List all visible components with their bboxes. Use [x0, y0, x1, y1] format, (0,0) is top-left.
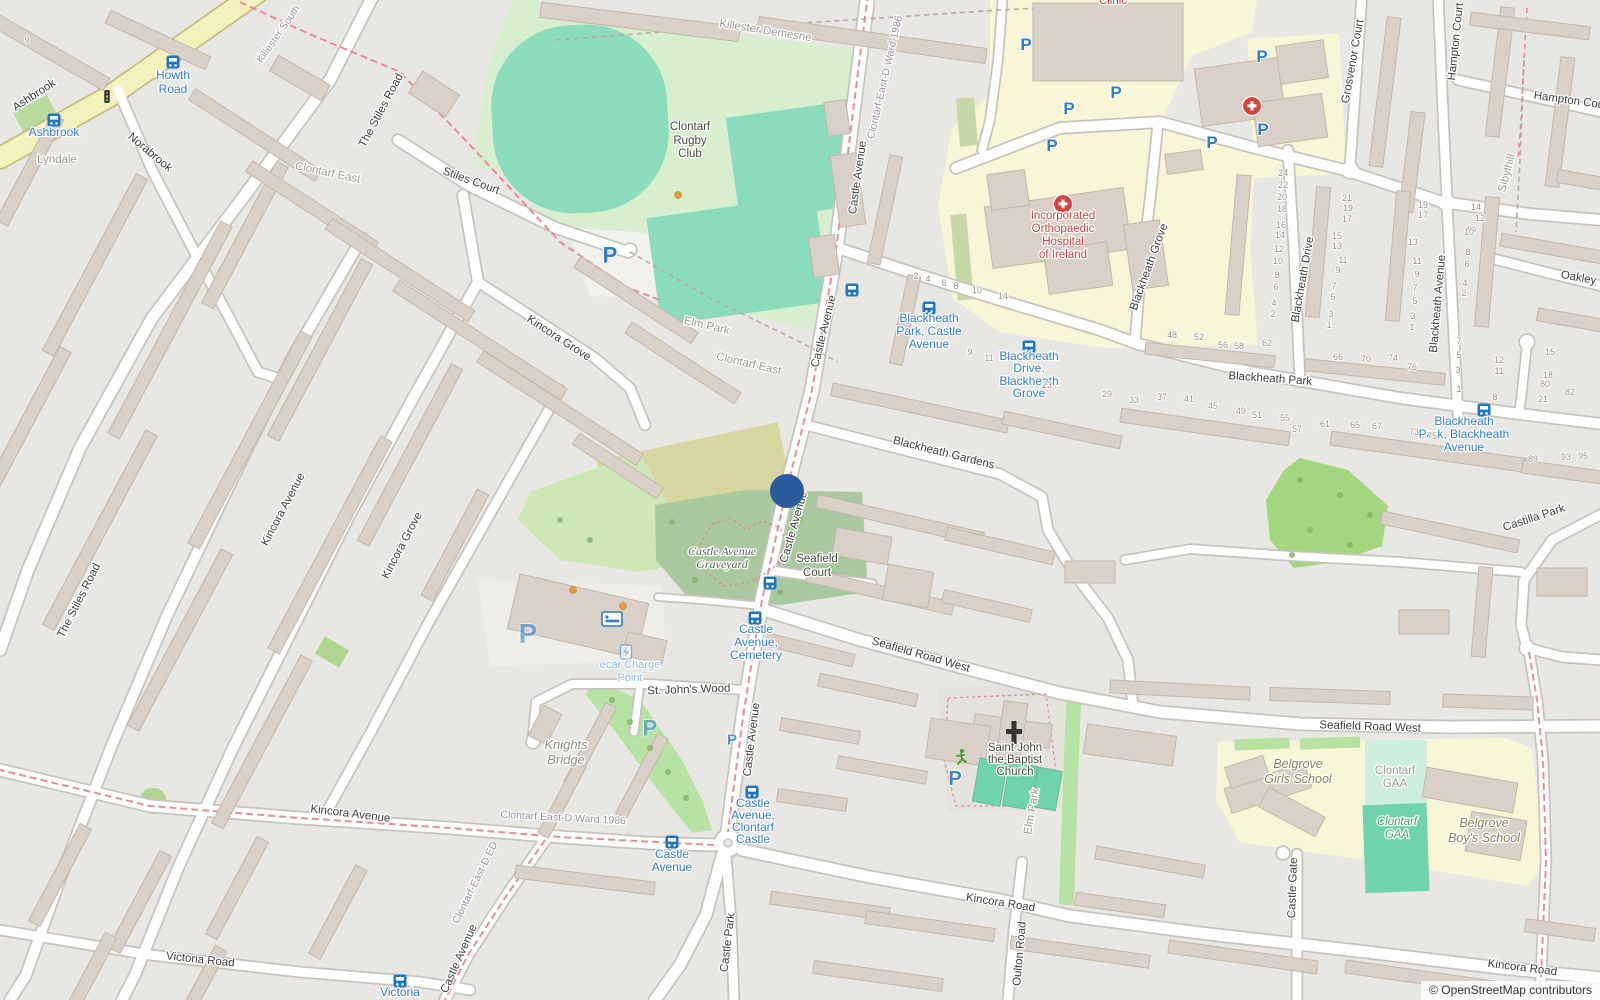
housenumber-4: 4	[925, 274, 930, 284]
bus-icon-window	[766, 579, 774, 583]
bus-icon-wheel	[174, 64, 177, 67]
label-drive: Drive,	[1013, 361, 1044, 375]
bus-icon-window	[50, 116, 58, 120]
housenumber-51: 51	[1252, 410, 1262, 420]
bus-icon-bg	[846, 284, 859, 297]
bus-icon-window	[925, 304, 933, 308]
road-bulb	[1439, 195, 1455, 211]
building	[1033, 3, 1183, 81]
bus-icon-wheel	[853, 292, 856, 295]
bus-icon-wheel	[169, 64, 172, 67]
tree-icon	[669, 519, 675, 525]
label-gaa: GAA	[1383, 778, 1408, 790]
housenumber-6: 6	[1464, 259, 1469, 269]
housenumber-9: 9	[24, 35, 29, 45]
housenumber-1: 1	[1409, 322, 1414, 332]
housenumber-57: 57	[1292, 424, 1302, 434]
parking-icon: P	[519, 618, 538, 649]
housenumber-14: 14	[1471, 202, 1481, 212]
housenumber-12: 12	[1475, 213, 1485, 223]
housenumber-4: 4	[1271, 298, 1276, 308]
traffic-light-red	[106, 92, 108, 94]
building	[1443, 694, 1533, 710]
housenumber-22: 22	[1278, 180, 1288, 190]
label-castle-avenue: Castle Avenue	[688, 544, 757, 558]
label-cemetery: Cemetery	[730, 648, 782, 662]
housenumber-3: 3	[1455, 365, 1460, 375]
label-gaa: GAA	[1385, 829, 1410, 841]
building	[1537, 568, 1587, 596]
housenumber-55: 55	[1280, 413, 1290, 423]
label-avenue: Avenue	[652, 860, 693, 874]
label-ashbrook: Ashbrook	[29, 125, 81, 139]
label-club: Club	[678, 148, 702, 160]
housenumber-18: 18	[1277, 204, 1287, 214]
runner-head	[960, 749, 964, 753]
housenumber-75: 75	[1427, 431, 1437, 441]
housenumber-33: 33	[1129, 395, 1139, 405]
housenumber-20: 20	[1277, 192, 1287, 202]
tree-icon	[665, 769, 671, 775]
label-clontarf: Clontarf	[1377, 816, 1419, 828]
bus-icon-wheel	[766, 585, 769, 588]
bus-icon-wheel	[771, 585, 774, 588]
label-avenue: Avenue,	[734, 635, 778, 649]
housenumber-14: 14	[998, 291, 1008, 301]
housenumber-21: 21	[1538, 394, 1548, 404]
housenumber-8: 8	[1492, 392, 1497, 402]
bus-icon-window	[751, 614, 759, 618]
housenumber-1: 1	[1456, 384, 1461, 394]
housenumber-3: 3	[1328, 309, 1333, 319]
tree-icon	[777, 589, 783, 595]
housenumber-10: 10	[1273, 256, 1283, 266]
label-clinic: Clinic	[1099, 0, 1127, 7]
label-graveyard: Graveyard	[696, 557, 749, 571]
parking-icon: P	[948, 768, 961, 790]
parking-icon: P	[603, 243, 618, 268]
housenumber-8: 8	[1274, 270, 1279, 280]
road-bulb	[1520, 335, 1534, 349]
housenumber-11: 11	[1494, 366, 1503, 376]
housenumber-29: 29	[1102, 389, 1112, 399]
bus-stop-icon	[167, 56, 180, 69]
label-belgrove: Belgrove	[1459, 816, 1508, 830]
label-of-ireland: of Ireland	[1039, 249, 1087, 261]
housenumber-8: 8	[953, 281, 958, 291]
building	[1165, 150, 1203, 175]
housenumber-17: 17	[1418, 210, 1428, 220]
building	[1276, 40, 1329, 84]
bus-stop-icon	[846, 284, 859, 297]
housenumber-1: 1	[1326, 320, 1331, 330]
housenumber-76: 76	[1407, 362, 1417, 372]
traffic-light-green	[106, 99, 108, 101]
hospital-cross-icon	[1243, 97, 1262, 116]
tree-icon	[1307, 527, 1313, 533]
label-grove: Grove	[1013, 386, 1046, 400]
housenumber-6: 6	[941, 278, 946, 288]
parking-icon: P	[1110, 83, 1121, 102]
poi-dot-icon	[620, 603, 627, 610]
housenumber-49: 49	[1236, 406, 1246, 416]
area-rugby-oval	[487, 21, 673, 218]
housenumber-7: 7	[1412, 283, 1417, 293]
area-school-green-1	[1234, 738, 1289, 751]
bus-icon-window	[848, 286, 856, 290]
building	[987, 170, 1030, 211]
bus-icon-bg	[764, 577, 777, 590]
housenumber-7: 7	[1456, 336, 1461, 346]
housenumber-12: 12	[1274, 244, 1284, 254]
housenumber-16: 16	[1276, 220, 1286, 230]
parking-icon: P	[1257, 120, 1268, 139]
traffic-light-amber	[106, 95, 108, 97]
poi-dot-icon	[570, 587, 577, 594]
bus-icon-window	[668, 838, 676, 842]
parking-icon: P	[643, 716, 658, 741]
label-clontarf: Clontarf	[1375, 765, 1416, 777]
housenumber-45: 45	[1208, 401, 1218, 411]
tree-icon	[557, 517, 563, 523]
housenumber-11: 11	[1338, 255, 1347, 265]
housenumber-10: 10	[1464, 227, 1474, 237]
tree-icon	[1337, 492, 1343, 498]
housenumber-19: 19	[1418, 200, 1428, 210]
housenumber-15: 15	[1332, 231, 1342, 241]
label-church: Church	[996, 766, 1033, 778]
road-bulb	[1520, 641, 1534, 655]
label-hospital: Hospital	[1042, 236, 1084, 248]
housenumber-4: 4	[1462, 278, 1467, 288]
housenumber-12: 12	[1494, 355, 1504, 365]
housenumber-56: 56	[1218, 340, 1228, 350]
bed-pillow	[605, 615, 608, 618]
housenumber-11: 11	[1412, 256, 1421, 266]
roundabout-island	[724, 839, 732, 847]
label-castle: Castle	[739, 622, 773, 636]
ev-charge-icon	[621, 645, 632, 659]
label-castle: Castle	[736, 832, 770, 846]
label-the-baptist: the Baptist	[988, 754, 1043, 766]
housenumber-15: 15	[1545, 347, 1555, 357]
housenumber-9: 9	[1414, 269, 1419, 279]
housenumber-13: 13	[1408, 237, 1418, 247]
housenumber-2: 2	[913, 271, 918, 281]
label-court: Court	[803, 567, 832, 579]
label-belgrove: Belgrove	[1273, 757, 1322, 771]
housenumber-17: 17	[1342, 214, 1352, 224]
label-rugby: Rugby	[673, 135, 706, 147]
housenumber-6: 6	[1273, 282, 1278, 292]
housenumber-70: 70	[1361, 354, 1371, 364]
label-clontarf: Clontarf	[670, 121, 711, 133]
label-lyndale: Lyndale	[37, 154, 77, 166]
parking-icon: P	[1256, 47, 1267, 66]
label-ecar-charge: ecar Charge	[600, 659, 661, 671]
poi-dot-icon	[675, 192, 682, 199]
housenumber-23: 23	[1042, 380, 1052, 390]
building	[824, 100, 851, 137]
housenumber-9: 9	[1335, 265, 1340, 275]
bus-icon-bg	[167, 56, 180, 69]
label-blackheath: Blackheath	[1434, 414, 1493, 428]
parking-icon: P	[1020, 35, 1031, 54]
housenumber-80: 80	[1540, 379, 1550, 389]
housenumber-10: 10	[972, 285, 982, 295]
housenumber-93: 93	[1561, 452, 1571, 462]
bus-stop-icon	[764, 577, 777, 590]
housenumber-58: 58	[1234, 341, 1244, 351]
attribution-link[interactable]: © OpenStreetMap contributors	[1429, 983, 1592, 997]
housenumber-61: 61	[1320, 419, 1330, 429]
hotel-bed-icon	[602, 612, 622, 626]
label-orthopaedic: Orthopaedic	[1032, 223, 1095, 235]
label-incorporated: Incorporated	[1031, 210, 1096, 222]
location-marker[interactable]	[770, 474, 804, 508]
road-bulb	[1277, 847, 1289, 859]
building	[882, 564, 934, 607]
bus-icon-window	[1480, 406, 1488, 410]
bus-icon-wheel	[848, 292, 851, 295]
bus-icon-window	[396, 977, 404, 981]
label-avenue: Avenue	[909, 337, 950, 351]
tree-icon	[1367, 512, 1373, 518]
tree-icon	[647, 745, 653, 751]
housenumber-73: 73	[1409, 427, 1419, 437]
label-saint-john: Saint John	[988, 742, 1042, 754]
label-castle: Castle	[655, 847, 689, 861]
parking-icon: P	[1063, 99, 1074, 118]
housenumber-7: 7	[1331, 281, 1336, 291]
housenumber-5: 5	[1330, 292, 1335, 302]
map-viewport[interactable]: PPPPPPPPPPPPAshbrookNorabrookThe Stiles …	[0, 0, 1600, 1000]
tree-icon	[1347, 542, 1353, 548]
tree-icon	[692, 577, 698, 583]
bed-frame	[602, 612, 622, 626]
tree-icon	[1297, 477, 1303, 483]
map-canvas[interactable]: PPPPPPPPPPPPAshbrookNorabrookThe Stiles …	[0, 0, 1600, 1000]
housenumber-67: 67	[1372, 421, 1382, 431]
housenumber-89: 89	[1528, 454, 1538, 464]
housenumber-11: 11	[984, 353, 993, 363]
housenumber-95: 95	[1578, 451, 1588, 461]
tree-icon	[587, 537, 593, 543]
housenumber-74: 74	[1388, 353, 1398, 363]
housenumber-5: 5	[1456, 350, 1461, 360]
label-bridge: Bridge	[547, 752, 585, 767]
housenumber-24: 24	[1278, 168, 1288, 178]
housenumber-5: 5	[1412, 296, 1417, 306]
bus-icon-window	[748, 788, 756, 792]
label-seafield: Seafield	[796, 553, 838, 565]
building	[1065, 561, 1115, 583]
housenumber-65: 65	[1350, 420, 1360, 430]
housenumber-13: 13	[1332, 241, 1342, 251]
label-victoria: Victoria	[380, 985, 420, 999]
label-avenue: Avenue	[1444, 440, 1485, 454]
housenumber-41: 41	[1184, 394, 1194, 404]
tree-icon	[683, 795, 689, 801]
label-castle-gate: Castle Gate	[1286, 857, 1300, 918]
housenumber-14: 14	[1275, 230, 1285, 240]
building	[808, 234, 839, 277]
housenumber-48: 48	[1167, 330, 1177, 340]
bus-icon-window	[1025, 343, 1033, 347]
attribution: © OpenStreetMap contributors	[1421, 981, 1600, 1000]
housenumber-2: 2	[1461, 288, 1466, 298]
tree-icon	[627, 719, 633, 725]
label-knights: Knights	[544, 737, 588, 752]
label-blackheath: Blackheath	[899, 311, 958, 325]
label-park-castle: Park, Castle	[896, 324, 962, 338]
tree-icon	[609, 697, 615, 703]
traffic-light-icon	[104, 90, 110, 103]
area-school-green-2	[1300, 736, 1360, 749]
housenumber-19: 19	[1343, 203, 1353, 213]
housenumber-9: 9	[967, 347, 972, 357]
housenumber-3: 3	[1410, 311, 1415, 321]
housenumber-62: 62	[1262, 338, 1272, 348]
housenumber-21: 21	[1342, 193, 1352, 203]
building	[1399, 610, 1449, 634]
housenumber-82: 82	[1565, 387, 1575, 397]
tree-icon	[1289, 552, 1295, 558]
housenumber-8: 8	[1465, 247, 1470, 257]
label-boy-s-school: Boy's School	[1448, 831, 1521, 845]
parking-icon: P	[1046, 136, 1057, 155]
label-girls-school: Girls School	[1264, 772, 1333, 786]
housenumber-66: 66	[1333, 352, 1343, 362]
parking-icon: P	[727, 731, 737, 748]
bus-icon-window	[169, 58, 177, 62]
road-bulb	[1342, 162, 1358, 178]
housenumber-37: 37	[1157, 392, 1167, 402]
housenumber-2: 2	[1270, 309, 1275, 319]
label-howth: Howth	[156, 68, 190, 82]
parking-icon: P	[1206, 133, 1217, 152]
label-road: Road	[159, 82, 188, 96]
housenumber-52: 52	[1194, 332, 1204, 342]
label-point: Point	[617, 672, 642, 684]
